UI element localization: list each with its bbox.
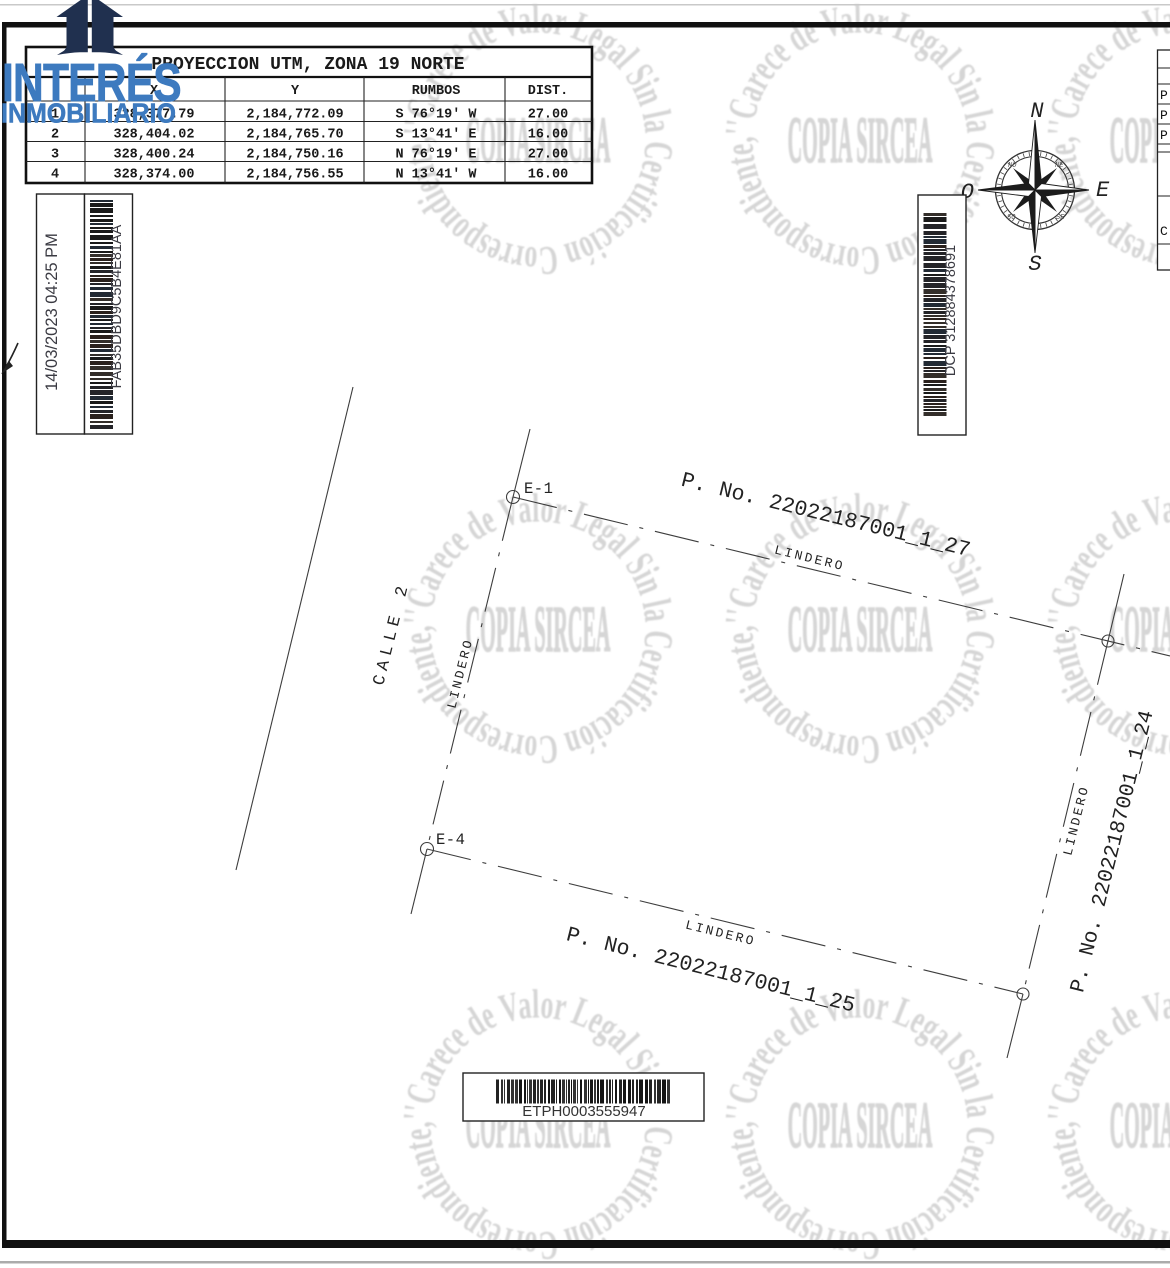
svg-text:3: 3 — [51, 148, 59, 163]
svg-text:DIST.: DIST. — [528, 84, 569, 99]
svg-text:16.00: 16.00 — [528, 168, 569, 183]
svg-text:P: P — [1160, 128, 1168, 143]
svg-text:328,400.24: 328,400.24 — [113, 148, 194, 163]
svg-text:ETPH0003555947: ETPH0003555947 — [522, 1103, 645, 1120]
svg-text:27.00: 27.00 — [528, 148, 569, 163]
svg-text:E-4: E-4 — [436, 831, 465, 849]
svg-text:INMOBILIARIO: INMOBILIARIO — [1, 97, 176, 128]
svg-text:16.00: 16.00 — [528, 128, 569, 143]
svg-text:RUMBOS: RUMBOS — [412, 84, 461, 99]
svg-text:FAB35DBD9C5B4E81AA: FAB35DBD9C5B4E81AA — [109, 224, 125, 388]
svg-text:2,184,772.09: 2,184,772.09 — [246, 108, 343, 123]
svg-text:S: S — [1028, 252, 1041, 277]
svg-text:S 76°19' W: S 76°19' W — [395, 108, 477, 123]
svg-text:2,184,750.16: 2,184,750.16 — [246, 148, 343, 163]
svg-text:DCP 312884378691: DCP 312884378691 — [943, 245, 959, 376]
svg-text:14/03/2023 04:25 PM: 14/03/2023 04:25 PM — [43, 233, 61, 391]
svg-text:4: 4 — [51, 168, 59, 183]
svg-text:PROYECCION UTM, ZONA 19 NORTE: PROYECCION UTM, ZONA 19 NORTE — [151, 55, 464, 75]
svg-text:SO: SO — [1007, 214, 1016, 222]
svg-text:2,184,756.55: 2,184,756.55 — [246, 168, 343, 183]
svg-text:SE: SE — [1056, 214, 1065, 222]
svg-text:NE: NE — [1055, 162, 1064, 170]
svg-text:328,374.00: 328,374.00 — [113, 168, 194, 183]
svg-text:P: P — [1160, 108, 1168, 123]
svg-text:2,184,765.70: 2,184,765.70 — [246, 128, 343, 143]
svg-text:P: P — [1160, 88, 1168, 103]
svg-text:N: N — [1030, 99, 1044, 124]
svg-text:N 13°41' W: N 13°41' W — [395, 168, 477, 183]
svg-text:E-1: E-1 — [524, 480, 553, 498]
svg-text:NO: NO — [1008, 162, 1017, 170]
svg-text:2: 2 — [51, 128, 59, 143]
svg-text:N 76°19' E: N 76°19' E — [395, 148, 476, 163]
svg-text:E: E — [1096, 178, 1110, 203]
svg-text:Y: Y — [291, 84, 300, 99]
svg-text:C: C — [1160, 224, 1168, 239]
svg-text:328,404.02: 328,404.02 — [113, 128, 194, 143]
svg-text:S 13°41' E: S 13°41' E — [395, 128, 476, 143]
svg-text:27.00: 27.00 — [528, 108, 569, 123]
